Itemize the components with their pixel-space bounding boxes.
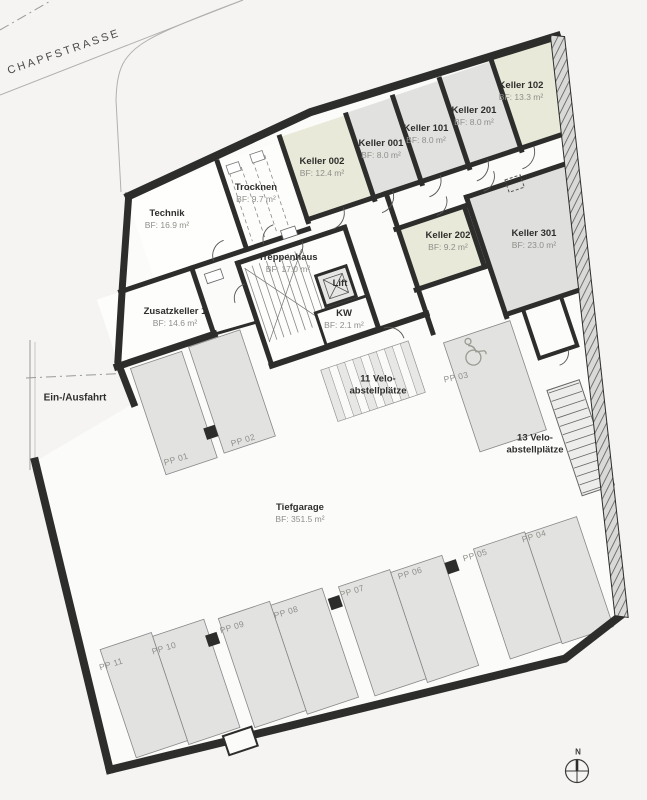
room-label-treppenhaus: TreppenhausBF: 17.0 m²: [258, 252, 317, 275]
room-label-keller-001: Keller 001BF: 8.0 m²: [359, 138, 404, 161]
north-label: N: [575, 748, 581, 757]
bike-label-13: 13 Velo-abstellplätze: [506, 433, 563, 458]
room-label-zusatzkeller: Zusatzkeller 1BF: 14.6 m²: [144, 306, 207, 329]
room-label-lift: Lift: [333, 278, 348, 290]
room-label-tiefgarage: TiefgarageBF: 351.5 m²: [275, 502, 324, 525]
room-label-trocknen: TrocknenBF: 9.7 m²: [235, 182, 277, 205]
bike-label-11: 11 Velo-abstellplätze: [349, 374, 406, 399]
room-label-keller-102: Keller 102BF: 13.3 m²: [499, 80, 544, 103]
floorplan-page: { "site": { "street": "CHAPFSTRASSE", "e…: [0, 0, 647, 800]
room-label-kw: KWBF: 2.1 m²: [324, 308, 364, 331]
room-label-keller-201: Keller 201BF: 8.0 m²: [452, 105, 497, 128]
room-label-keller-301: Keller 301BF: 23.0 m²: [512, 228, 557, 251]
room-label-keller-101: Keller 101BF: 8.0 m²: [404, 123, 449, 146]
entry-exit-label: Ein-/Ausfahrt: [44, 393, 107, 404]
room-label-keller-202: Keller 202BF: 9.2 m²: [426, 230, 471, 253]
room-label-keller-002: Keller 002BF: 12.4 m²: [300, 156, 345, 179]
north-arrow: [566, 760, 589, 783]
room-label-technik: TechnikBF: 16.9 m²: [145, 208, 189, 231]
